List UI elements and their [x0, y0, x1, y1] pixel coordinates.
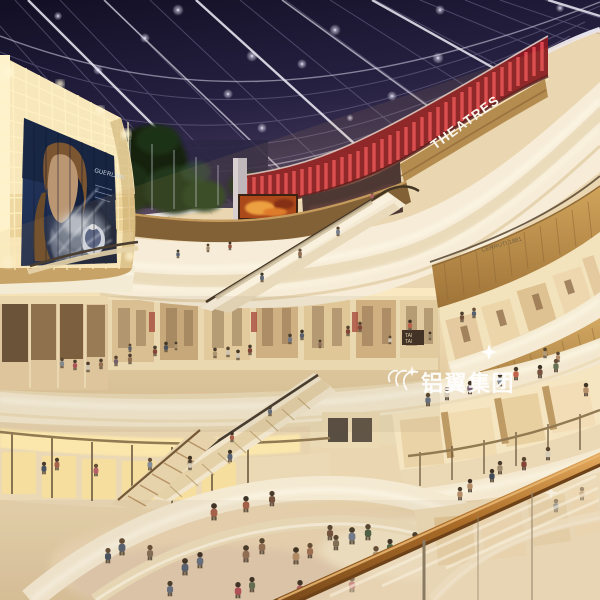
- svg-text:铝翼集团: 铝翼集团: [421, 371, 515, 396]
